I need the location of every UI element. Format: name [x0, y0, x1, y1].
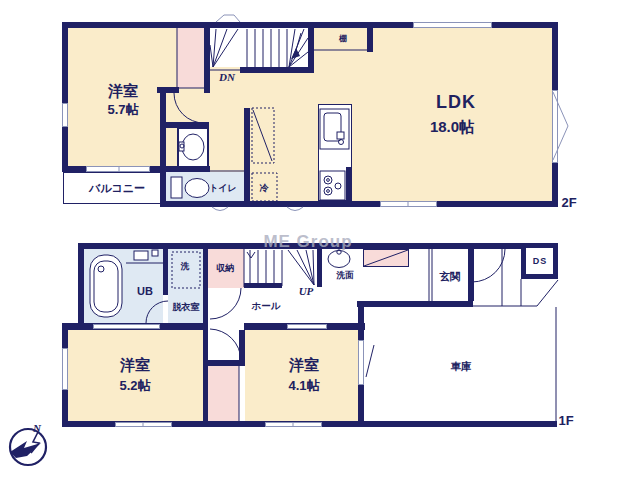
wall — [244, 283, 282, 288]
watermark: ME Group — [263, 232, 352, 252]
window — [413, 22, 492, 28]
wall — [203, 249, 208, 330]
floor-plan: 洋室 5.7帖 LDK 18.0帖 バルコニー トイレ 棚 冷 DN 2F UB… — [0, 0, 640, 480]
wall — [166, 122, 209, 128]
compass-north-label: N — [33, 423, 41, 434]
room-label-western41: 洋室 — [289, 357, 319, 372]
floor2-washbasin-room — [177, 127, 209, 168]
window — [380, 201, 437, 207]
wall — [521, 274, 558, 279]
floor1-closet — [208, 366, 239, 421]
shelf-label: 棚 — [339, 35, 347, 43]
room-size-western57: 5.7帖 — [107, 103, 138, 116]
floor2-stairwell — [210, 28, 308, 67]
wall — [240, 67, 314, 73]
wall — [468, 249, 474, 301]
balcony-label: バルコニー — [89, 183, 145, 194]
garage-diagonal — [366, 345, 374, 377]
window — [93, 324, 160, 329]
washer-label: 洗 — [181, 262, 190, 271]
storage-label: 収納 — [216, 264, 234, 273]
wall — [78, 249, 84, 325]
unit-bath-label: UB — [137, 286, 153, 297]
vent-mark — [287, 207, 303, 211]
bedroom-41-interior — [245, 330, 358, 421]
window — [358, 340, 364, 385]
window — [62, 103, 68, 127]
window — [62, 348, 68, 390]
wall — [62, 166, 88, 172]
dressing-room-label: 脱衣室 — [173, 303, 200, 312]
wall — [160, 201, 558, 207]
stairs-1f — [244, 249, 314, 287]
hall-label: ホール — [252, 301, 281, 311]
floor2-label: 2F — [561, 196, 576, 209]
garage-label: 車庫 — [451, 361, 472, 372]
window — [552, 90, 558, 163]
room-size-ldk: 18.0帖 — [430, 119, 474, 134]
toilet-label: トイレ — [209, 184, 237, 193]
wall — [244, 108, 250, 207]
stair-slope-area — [363, 249, 409, 267]
compass-icon — [10, 429, 46, 465]
wall — [317, 249, 322, 287]
floor2-closet — [177, 28, 204, 88]
room-label-ldk: LDK — [436, 93, 476, 111]
floor1-label: 1F — [558, 414, 573, 427]
entrance-door-arc — [472, 249, 505, 282]
vent-mark — [216, 15, 240, 22]
window — [86, 166, 150, 172]
sink-icon — [328, 250, 350, 268]
wall — [204, 28, 210, 93]
door-arc — [210, 288, 241, 319]
wall — [346, 167, 352, 201]
wall — [239, 330, 245, 366]
window — [115, 422, 172, 427]
duct-space-label: DS — [533, 257, 548, 266]
fridge-label: 冷 — [260, 184, 269, 193]
bedroom-52-interior — [68, 330, 203, 421]
room-label-western57: 洋室 — [108, 83, 138, 98]
stairs-down-label: DN — [219, 72, 235, 83]
wall — [150, 166, 166, 172]
window — [287, 324, 327, 329]
porch-corner-diagonal — [537, 280, 558, 306]
room-size-western52: 5.2帖 — [119, 379, 150, 392]
wall — [208, 360, 239, 366]
entrance-label: 玄関 — [440, 271, 461, 282]
wall — [160, 166, 210, 172]
wall — [163, 249, 168, 295]
room-label-western52: 洋室 — [120, 357, 150, 372]
wall — [203, 330, 208, 421]
wall — [308, 28, 314, 72]
door-arc — [210, 329, 241, 360]
wall — [62, 28, 68, 172]
window — [265, 422, 322, 427]
wall — [367, 28, 373, 52]
room-size-western41: 4.1帖 — [288, 379, 319, 392]
washbasin-label: 洗面 — [337, 271, 354, 280]
wall — [160, 87, 166, 207]
stairs-up-label: UP — [299, 286, 314, 297]
wall — [357, 301, 473, 307]
vent-mark — [212, 207, 228, 211]
